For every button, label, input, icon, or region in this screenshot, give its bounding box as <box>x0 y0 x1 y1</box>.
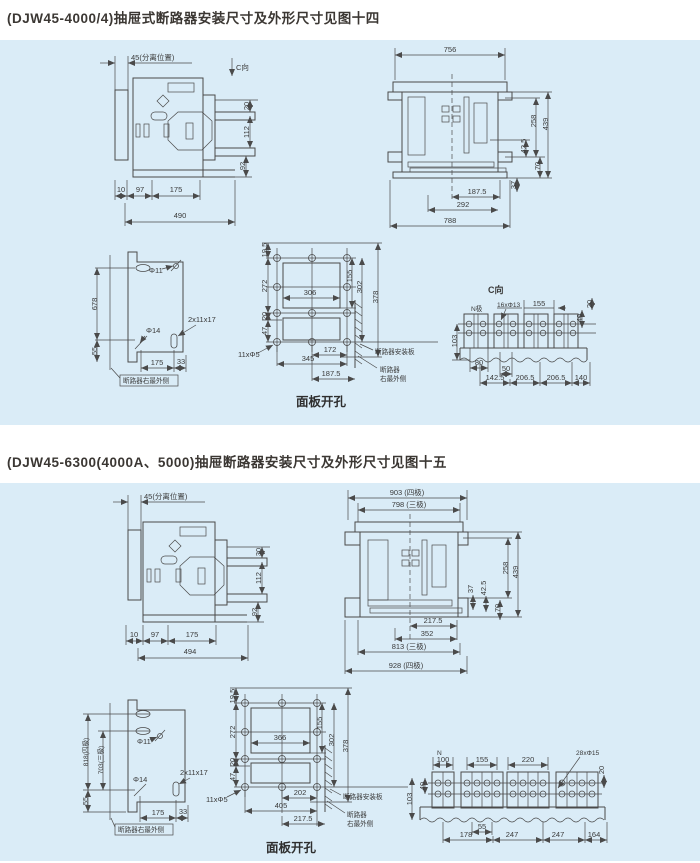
dim-42-5: 42.5 <box>519 139 528 154</box>
label-n-pole: N极 <box>471 304 483 313</box>
figure-15-title: (DJW45-6300(4000A、5000)抽屉断路器安装尺寸及外形尺寸见图十… <box>7 451 447 471</box>
dim-19-5: 19.5 <box>228 689 237 704</box>
label-breaker-rightmost: 断路器右最外侧 <box>123 376 170 385</box>
caption-panel-cutout: 面板开孔 <box>266 840 317 855</box>
dim-112: 112 <box>254 572 263 584</box>
dim-37: 37 <box>466 585 475 593</box>
figure-14-title: (DJW45-4000/4)抽屉式断路器安装尺寸及外形尺寸见图十四 <box>7 7 380 27</box>
dim-phi11: Φ11 <box>137 737 151 746</box>
dim-55: 55 <box>90 347 99 355</box>
dim-788: 788 <box>444 216 457 225</box>
label-rightmost: 右最外侧 <box>347 819 374 828</box>
dim-247b: 247 <box>552 830 565 839</box>
label-breaker-rightmost: 断路器右最外侧 <box>118 825 165 834</box>
fig14-cutout-view: 19.5 272 20 47 155 302 378 306 172 345 <box>238 243 438 409</box>
dim-813: 813 (三极) <box>392 641 427 651</box>
dim-10: 10 <box>117 185 125 194</box>
dim-55: 55 <box>478 822 486 831</box>
dim-292: 292 <box>457 200 470 209</box>
fig15-side-view: 45(分离位置) 30 112 92 <box>113 491 270 661</box>
dim-494: 494 <box>184 647 197 656</box>
label-breaker: 断路器 <box>347 810 367 819</box>
figure-15-panel: 45(分离位置) 30 112 92 <box>0 483 700 861</box>
dim-155: 155 <box>315 717 324 730</box>
dim-42-5: 42.5 <box>479 581 488 596</box>
dim-490: 490 <box>174 211 187 220</box>
dim-258: 258 <box>529 115 538 128</box>
dim-206-5b: 206.5 <box>547 373 566 382</box>
dim-70: 70 <box>533 162 542 170</box>
dim-217-5: 217.5 <box>294 814 313 823</box>
dim-272: 272 <box>260 280 269 293</box>
dim-405: 405 <box>275 801 288 810</box>
dim-97: 97 <box>151 630 159 639</box>
dim-103: 103 <box>405 793 414 806</box>
dim-818: 818(四极) <box>81 738 90 767</box>
dim-306: 306 <box>304 288 317 297</box>
figure-15-drawings: 45(分离位置) 30 112 92 <box>0 483 700 861</box>
dim-187-5: 187.5 <box>468 187 487 196</box>
dim-175: 175 <box>170 185 183 194</box>
dim-352: 352 <box>421 629 434 638</box>
dim-175: 175 <box>186 630 199 639</box>
label-mounting-plate: 断路器安装板 <box>343 792 383 801</box>
dim-50: 50 <box>502 364 510 373</box>
catalog-page: (DJW45-4000/4)抽屉式断路器安装尺寸及外形尺寸见图十四 45(分离位… <box>0 0 700 863</box>
fig15-front-view: 903 (四极) 798 (三极) 258 <box>345 487 522 674</box>
dim-302: 302 <box>327 734 336 747</box>
dim-80: 80 <box>475 358 483 367</box>
dim-103: 103 <box>450 335 459 348</box>
label-c-view: C向 <box>488 284 504 295</box>
fig15-drill-view: Φ11 818(四极) 703(三极) Φ14 2x11x17 55 175 3… <box>81 700 208 835</box>
dim-40: 40 <box>418 782 427 790</box>
dim-47: 47 <box>228 773 237 781</box>
label-c-direction: C向 <box>236 62 249 72</box>
dim-11xphi5: 11xΦ5 <box>238 350 260 359</box>
dim-20: 20 <box>585 300 594 308</box>
dim-92: 92 <box>250 608 259 616</box>
dim-55: 55 <box>81 797 90 805</box>
dim-phi11: Φ11 <box>149 266 163 275</box>
figure-14-drawings: 45(分离位置) C向 20 112 92 <box>0 40 700 425</box>
dim-112: 112 <box>242 126 251 138</box>
dim-217-5: 217.5 <box>424 616 443 625</box>
dim-slot-2x11x17: 2x11x17 <box>188 315 216 324</box>
dim-928: 928 (四极) <box>389 660 424 670</box>
dim-439: 439 <box>511 566 520 579</box>
dim-172: 172 <box>324 345 337 354</box>
dim-155: 155 <box>345 270 354 283</box>
dim-220: 220 <box>522 755 535 764</box>
dim-30: 30 <box>254 548 263 556</box>
dim-202: 202 <box>294 788 307 797</box>
dim-11xphi5: 11xΦ5 <box>206 795 228 804</box>
dim-175: 175 <box>152 808 165 817</box>
dim-92: 92 <box>238 162 247 170</box>
dim-142-5: 142.5 <box>486 373 505 382</box>
dim-45-separated: 45(分离位置) <box>144 491 188 501</box>
dim-187-5: 187.5 <box>322 369 341 378</box>
dim-slot-2x11x17: 2x11x17 <box>180 768 208 777</box>
dim-33: 33 <box>179 807 187 816</box>
dim-302: 302 <box>355 281 364 294</box>
dim-20: 20 <box>242 102 251 110</box>
dim-100: 100 <box>437 755 450 764</box>
dim-155: 155 <box>476 755 489 764</box>
fig15-cutout-view: 19.5 272 20 47 155 302 378 366 202 405 <box>206 688 408 855</box>
dim-798: 798 (三极) <box>392 499 427 509</box>
label-breaker: 断路器 <box>380 365 400 374</box>
dim-378: 378 <box>371 291 380 304</box>
dim-97: 97 <box>136 185 144 194</box>
dim-20: 20 <box>260 312 269 320</box>
dim-155: 155 <box>533 299 546 308</box>
fig14-side-view: 45(分离位置) C向 20 112 92 <box>100 52 258 226</box>
dim-164: 164 <box>588 830 601 839</box>
dim-439: 439 <box>541 118 550 131</box>
dim-19-5: 19.5 <box>260 243 269 258</box>
dim-703: 703(三极) <box>96 746 105 775</box>
dim-70: 70 <box>493 604 502 612</box>
dim-378: 378 <box>341 740 350 753</box>
dim-366: 366 <box>274 733 287 742</box>
figure-14-panel: 45(分离位置) C向 20 112 92 <box>0 40 700 425</box>
dim-20: 20 <box>228 758 237 766</box>
dim-20: 20 <box>597 766 606 774</box>
dim-247a: 247 <box>506 830 519 839</box>
fig14-front-view: 756 258 439 <box>388 45 552 228</box>
dim-272: 272 <box>228 726 237 739</box>
dim-258: 258 <box>501 562 510 575</box>
fig14-c-view: C向 N极 16xΦ13 155 20 <box>450 284 596 386</box>
dim-903: 903 (四极) <box>390 487 425 497</box>
fig14-drill-view: Φ11 678 55 Φ14 2x11x17 175 33 断路器右最外侧 <box>90 252 216 386</box>
dim-10: 10 <box>130 630 138 639</box>
dim-phi14: Φ14 <box>146 326 160 335</box>
dim-206-5: 206.5 <box>516 373 535 382</box>
dim-28xphi15: 28xΦ15 <box>576 750 600 757</box>
dim-phi14: Φ14 <box>133 775 147 784</box>
caption-panel-cutout: 面板开孔 <box>296 394 347 409</box>
dim-178: 178 <box>460 830 473 839</box>
dim-678: 678 <box>90 298 99 311</box>
dim-40: 40 <box>575 314 584 322</box>
label-mounting-plate: 断路器安装板 <box>375 347 415 356</box>
dim-756: 756 <box>444 45 457 54</box>
label-rightmost: 右最外侧 <box>380 374 407 383</box>
dim-45-separated: 45(分离位置) <box>131 52 175 62</box>
dim-175: 175 <box>151 358 164 367</box>
dim-33: 33 <box>177 357 185 366</box>
dim-345: 345 <box>302 354 315 363</box>
fig15-c-view: N 100 155 220 28xΦ15 <box>405 750 607 843</box>
dim-140: 140 <box>575 373 588 382</box>
dim-47: 47 <box>260 327 269 335</box>
